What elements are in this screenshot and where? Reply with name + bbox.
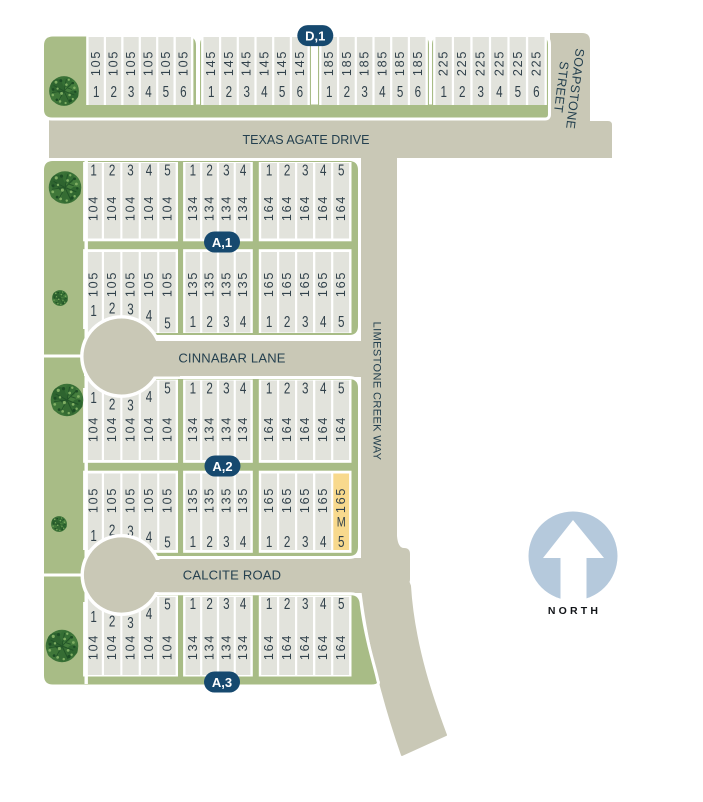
svg-text:5: 5: [164, 380, 171, 397]
svg-text:1: 1: [266, 162, 272, 179]
svg-text:6: 6: [533, 84, 540, 101]
svg-text:145: 145: [293, 50, 307, 76]
svg-text:164: 164: [280, 416, 294, 442]
svg-text:165: 165: [280, 487, 294, 513]
svg-text:4: 4: [146, 389, 153, 406]
svg-text:145: 145: [240, 50, 254, 76]
svg-text:225: 225: [529, 50, 543, 76]
svg-text:4: 4: [240, 314, 247, 331]
svg-text:1: 1: [190, 534, 196, 551]
svg-text:4: 4: [261, 84, 268, 101]
svg-text:4: 4: [146, 606, 153, 623]
svg-text:134: 134: [203, 416, 217, 442]
svg-text:105: 105: [142, 271, 156, 297]
svg-text:1: 1: [266, 380, 272, 397]
svg-text:135: 135: [236, 271, 250, 297]
svg-text:134: 134: [186, 195, 200, 221]
svg-text:4: 4: [146, 308, 153, 325]
svg-text:3: 3: [223, 534, 230, 551]
svg-text:185: 185: [358, 50, 372, 76]
svg-text:164: 164: [298, 195, 312, 221]
svg-text:1: 1: [266, 534, 272, 551]
svg-text:225: 225: [511, 50, 525, 76]
svg-text:164: 164: [316, 195, 330, 221]
svg-text:2: 2: [284, 162, 290, 179]
svg-text:2: 2: [206, 534, 212, 551]
svg-text:165: 165: [316, 487, 330, 513]
svg-text:1: 1: [190, 314, 196, 331]
svg-text:165: 165: [298, 271, 312, 297]
svg-text:134: 134: [203, 634, 217, 660]
svg-text:1: 1: [326, 84, 332, 101]
svg-text:D,1: D,1: [305, 29, 325, 44]
svg-text:3: 3: [302, 162, 309, 179]
svg-text:134: 134: [203, 195, 217, 221]
svg-text:4: 4: [240, 380, 247, 397]
svg-text:164: 164: [262, 195, 276, 221]
svg-text:3: 3: [302, 596, 309, 613]
svg-text:3: 3: [127, 615, 134, 632]
svg-text:145: 145: [275, 50, 289, 76]
svg-text:165: 165: [262, 487, 276, 513]
svg-text:164: 164: [280, 195, 294, 221]
svg-text:A,2: A,2: [212, 459, 232, 474]
svg-text:3: 3: [127, 397, 134, 414]
svg-text:145: 145: [257, 50, 271, 76]
svg-text:104: 104: [124, 634, 138, 660]
svg-text:5: 5: [164, 162, 171, 179]
svg-text:1: 1: [266, 314, 272, 331]
svg-text:104: 104: [87, 416, 101, 442]
svg-text:5: 5: [164, 315, 171, 332]
svg-text:3: 3: [302, 314, 309, 331]
svg-text:104: 104: [105, 195, 119, 221]
svg-text:4: 4: [496, 84, 503, 101]
svg-text:104: 104: [161, 416, 175, 442]
svg-text:4: 4: [320, 596, 327, 613]
svg-text:6: 6: [180, 84, 187, 101]
svg-text:3: 3: [477, 84, 484, 101]
svg-text:105: 105: [124, 271, 138, 297]
svg-text:165: 165: [334, 271, 348, 297]
svg-text:135: 135: [219, 487, 233, 513]
svg-text:185: 185: [393, 50, 407, 76]
svg-text:134: 134: [186, 416, 200, 442]
svg-text:135: 135: [203, 271, 217, 297]
svg-text:6: 6: [297, 84, 304, 101]
svg-text:104: 104: [161, 634, 175, 660]
svg-text:4: 4: [320, 314, 327, 331]
svg-text:3: 3: [127, 301, 134, 318]
svg-text:5: 5: [338, 596, 345, 613]
svg-text:A,3: A,3: [212, 675, 232, 690]
svg-text:185: 185: [322, 50, 336, 76]
svg-text:3: 3: [127, 162, 134, 179]
svg-text:134: 134: [219, 416, 233, 442]
svg-text:225: 225: [455, 50, 469, 76]
svg-text:105: 105: [159, 50, 173, 76]
svg-text:1: 1: [266, 596, 272, 613]
svg-text:105: 105: [105, 271, 119, 297]
svg-text:1: 1: [440, 84, 446, 101]
svg-text:2: 2: [110, 84, 116, 101]
svg-text:1: 1: [90, 303, 96, 320]
svg-text:2: 2: [284, 534, 290, 551]
svg-text:1: 1: [90, 609, 96, 626]
svg-text:4: 4: [240, 162, 247, 179]
svg-text:135: 135: [186, 487, 200, 513]
svg-text:104: 104: [161, 195, 175, 221]
svg-text:164: 164: [280, 634, 294, 660]
svg-text:5: 5: [279, 84, 286, 101]
svg-text:2: 2: [109, 396, 115, 413]
svg-text:3: 3: [128, 84, 135, 101]
svg-text:4: 4: [240, 534, 247, 551]
svg-text:5: 5: [163, 84, 170, 101]
svg-text:4: 4: [320, 162, 327, 179]
svg-text:1: 1: [90, 162, 96, 179]
svg-text:5: 5: [164, 596, 171, 613]
svg-text:2: 2: [206, 380, 212, 397]
svg-text:M: M: [337, 514, 346, 529]
svg-text:4: 4: [320, 534, 327, 551]
svg-text:2: 2: [206, 596, 212, 613]
svg-text:164: 164: [334, 634, 348, 660]
svg-text:5: 5: [338, 314, 345, 331]
svg-text:2: 2: [109, 613, 115, 630]
svg-text:165: 165: [262, 271, 276, 297]
svg-text:LIMESTONE CREEK WAY: LIMESTONE CREEK WAY: [371, 322, 383, 461]
svg-text:105: 105: [107, 50, 121, 76]
svg-text:165: 165: [334, 487, 348, 513]
svg-text:2: 2: [109, 300, 115, 317]
svg-text:104: 104: [142, 634, 156, 660]
svg-text:4: 4: [146, 162, 153, 179]
svg-text:225: 225: [474, 50, 488, 76]
svg-text:3: 3: [302, 380, 309, 397]
svg-text:145: 145: [222, 50, 236, 76]
svg-text:4: 4: [320, 380, 327, 397]
svg-text:185: 185: [411, 50, 425, 76]
svg-text:135: 135: [236, 487, 250, 513]
svg-text:CINNABAR LANE: CINNABAR LANE: [178, 351, 285, 366]
svg-text:105: 105: [161, 487, 175, 513]
svg-text:164: 164: [334, 195, 348, 221]
svg-text:2: 2: [284, 314, 290, 331]
svg-text:1: 1: [90, 390, 96, 407]
svg-text:135: 135: [203, 487, 217, 513]
svg-text:5: 5: [397, 84, 404, 101]
svg-text:104: 104: [142, 195, 156, 221]
svg-text:105: 105: [105, 487, 119, 513]
svg-text:4: 4: [240, 596, 247, 613]
svg-text:5: 5: [338, 534, 345, 551]
svg-text:225: 225: [437, 50, 451, 76]
svg-text:1: 1: [190, 596, 196, 613]
svg-text:4: 4: [379, 84, 386, 101]
svg-text:105: 105: [142, 487, 156, 513]
svg-text:TEXAS AGATE DRIVE: TEXAS AGATE DRIVE: [243, 133, 370, 147]
svg-text:104: 104: [105, 634, 119, 660]
svg-text:104: 104: [142, 416, 156, 442]
svg-text:2: 2: [226, 84, 232, 101]
svg-text:1: 1: [90, 528, 96, 545]
svg-text:3: 3: [223, 596, 230, 613]
svg-text:165: 165: [316, 271, 330, 297]
svg-text:104: 104: [87, 634, 101, 660]
svg-text:2: 2: [109, 162, 115, 179]
svg-text:165: 165: [280, 271, 294, 297]
svg-text:2: 2: [284, 380, 290, 397]
svg-text:134: 134: [219, 195, 233, 221]
svg-text:145: 145: [204, 50, 218, 76]
svg-text:A,1: A,1: [212, 235, 232, 250]
svg-text:3: 3: [223, 314, 230, 331]
svg-text:3: 3: [223, 162, 230, 179]
svg-text:164: 164: [298, 634, 312, 660]
svg-text:105: 105: [89, 50, 103, 76]
svg-text:105: 105: [87, 271, 101, 297]
svg-text:5: 5: [338, 162, 345, 179]
svg-text:3: 3: [361, 84, 368, 101]
svg-text:164: 164: [262, 634, 276, 660]
svg-text:164: 164: [298, 416, 312, 442]
svg-text:2: 2: [206, 162, 212, 179]
svg-text:185: 185: [340, 50, 354, 76]
svg-text:134: 134: [219, 634, 233, 660]
svg-text:NORTH: NORTH: [548, 605, 601, 617]
svg-text:105: 105: [124, 487, 138, 513]
svg-text:164: 164: [334, 416, 348, 442]
svg-text:2: 2: [284, 596, 290, 613]
svg-text:1: 1: [208, 84, 214, 101]
svg-text:135: 135: [186, 271, 200, 297]
svg-text:104: 104: [105, 416, 119, 442]
svg-text:164: 164: [262, 416, 276, 442]
svg-text:4: 4: [145, 84, 152, 101]
svg-text:2: 2: [206, 314, 212, 331]
svg-text:104: 104: [87, 195, 101, 221]
svg-text:134: 134: [236, 416, 250, 442]
svg-text:1: 1: [190, 162, 196, 179]
svg-text:5: 5: [338, 380, 345, 397]
svg-text:105: 105: [87, 487, 101, 513]
svg-text:3: 3: [223, 380, 230, 397]
svg-text:105: 105: [142, 50, 156, 76]
svg-text:5: 5: [164, 534, 171, 551]
svg-text:135: 135: [219, 271, 233, 297]
svg-text:CALCITE ROAD: CALCITE ROAD: [183, 568, 281, 583]
svg-text:164: 164: [316, 634, 330, 660]
svg-text:105: 105: [161, 271, 175, 297]
svg-text:104: 104: [124, 416, 138, 442]
svg-text:104: 104: [124, 195, 138, 221]
svg-text:164: 164: [316, 416, 330, 442]
svg-text:185: 185: [375, 50, 389, 76]
svg-text:105: 105: [176, 50, 190, 76]
svg-text:1: 1: [93, 84, 99, 101]
svg-text:165: 165: [298, 487, 312, 513]
svg-text:3: 3: [302, 534, 309, 551]
svg-text:134: 134: [236, 195, 250, 221]
svg-text:134: 134: [236, 634, 250, 660]
svg-text:5: 5: [515, 84, 522, 101]
svg-text:134: 134: [186, 634, 200, 660]
svg-text:2: 2: [459, 84, 465, 101]
svg-text:105: 105: [124, 50, 138, 76]
svg-text:2: 2: [344, 84, 350, 101]
svg-text:1: 1: [190, 380, 196, 397]
svg-text:6: 6: [415, 84, 422, 101]
svg-text:3: 3: [243, 84, 250, 101]
svg-text:225: 225: [492, 50, 506, 76]
